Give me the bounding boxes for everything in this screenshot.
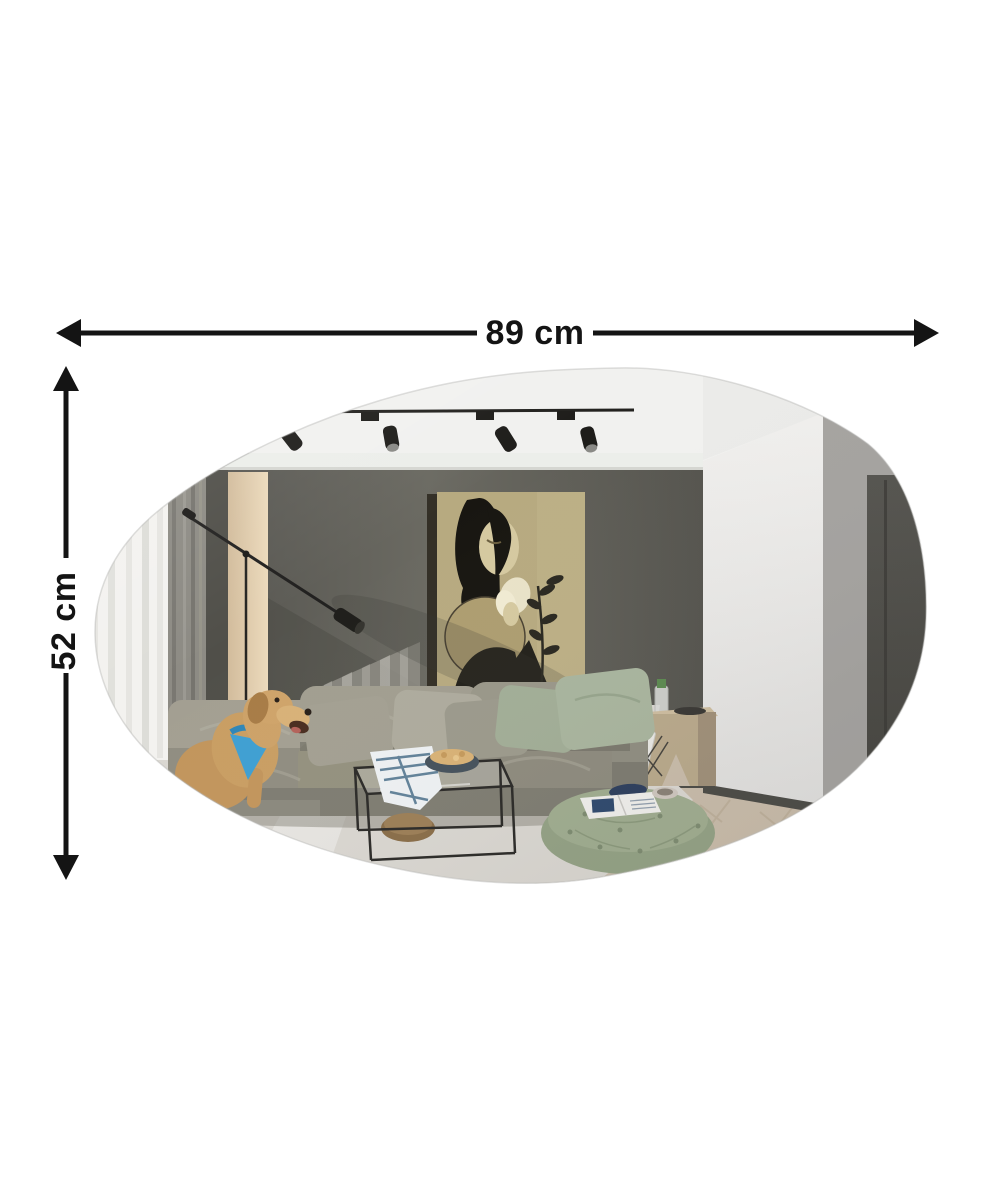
- arrowhead-right-icon: [914, 319, 939, 347]
- height-arrow-line-top: [64, 386, 69, 558]
- width-dimension-label: 89 cm: [477, 311, 593, 355]
- height-arrow-line-bottom: [64, 673, 69, 860]
- mirror-product-illustration: [0, 0, 1000, 1200]
- arrowhead-up-icon: [53, 366, 79, 391]
- mirror-reflection-scene: [80, 350, 940, 905]
- product-image-canvas: 89 cm 52 cm: [0, 0, 1000, 1200]
- width-arrow-line-right: [593, 331, 919, 336]
- mirror-glass-overlay: [95, 368, 926, 883]
- height-dimension-label: 52 cm: [43, 549, 85, 693]
- width-arrow-line-left: [76, 331, 477, 336]
- arrowhead-down-icon: [53, 855, 79, 880]
- arrowhead-left-icon: [56, 319, 81, 347]
